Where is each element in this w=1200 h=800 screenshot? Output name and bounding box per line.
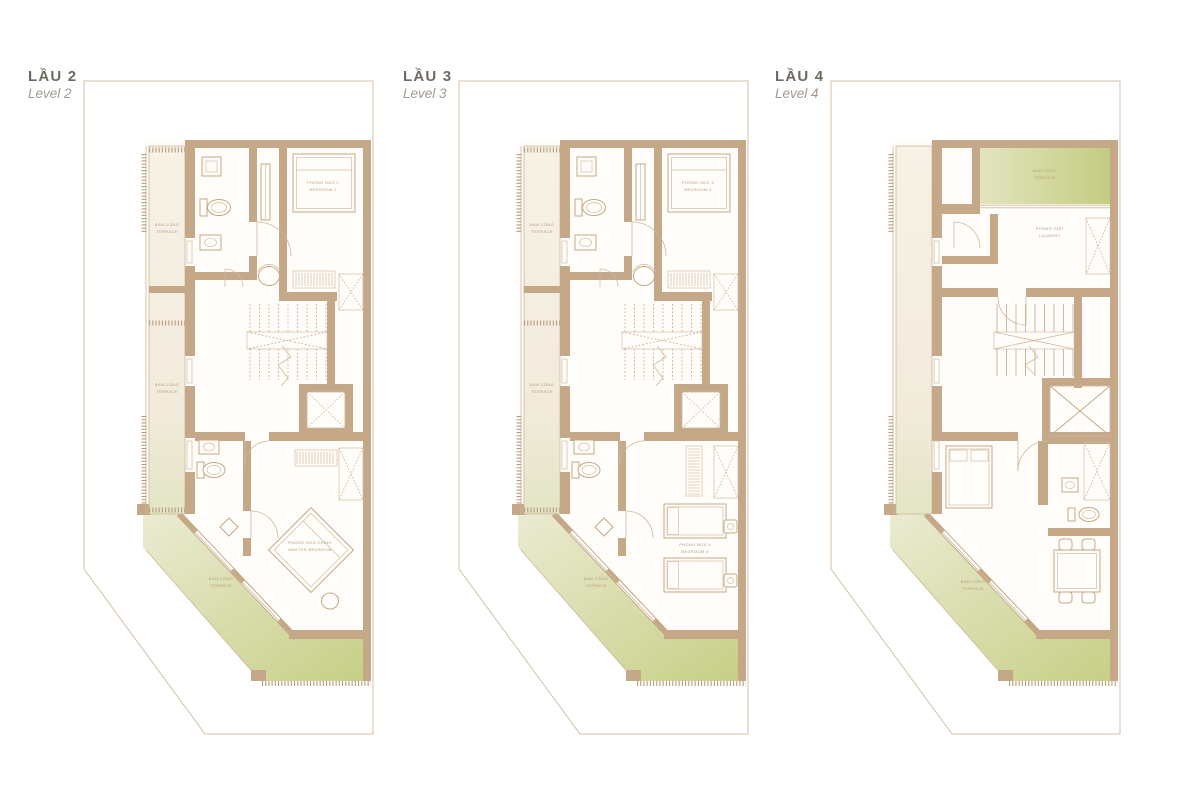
nightstand: [724, 520, 737, 533]
svg-text:TERRACE: TERRACE: [531, 229, 553, 234]
sink-fixture: [200, 235, 221, 250]
plan-title-block: LẦU 4 Level 4: [775, 68, 824, 101]
bed-furniture: [664, 558, 726, 592]
balcony-upper-label: BAN CÔNG: [155, 222, 179, 227]
svg-text:LAUNDRY: LAUNDRY: [1039, 233, 1061, 238]
toilet-fixture: [200, 199, 231, 216]
bedroom-top: PHÒNG NGỦ 3 BEDROOM 3: [668, 154, 730, 212]
bed-furniture: [946, 446, 992, 508]
balcony-lower-label: BAN CÔNG: [155, 382, 179, 387]
armchair: [321, 593, 339, 609]
floor-plan-level-4-drawing: BAN CÔNG TERRACE BAN CÔNG TERRACE: [830, 80, 1122, 740]
dining-table: [1054, 550, 1100, 592]
plan-subtitle: Level 3: [403, 86, 452, 101]
plan-level-4: LẦU 4 Level 4 BAN CÔNG TERRACE: [762, 66, 1142, 796]
balcony-strip: BAN CÔNG TERRACE BAN CÔNG TERRACE: [144, 146, 185, 514]
shower-fixture: [577, 157, 596, 176]
toilet-fixture: [572, 462, 600, 478]
light-well-strip: [891, 146, 932, 514]
closet-slot: [261, 164, 270, 220]
toilet-fixture: [1068, 508, 1099, 522]
sink-fixture: [574, 440, 594, 454]
svg-text:TERRACE: TERRACE: [962, 586, 984, 591]
plan-title-block: LẦU 3 Level 3: [403, 68, 452, 101]
plan-title: LẦU 3: [403, 68, 452, 85]
closet-slot: [636, 164, 645, 220]
svg-text:TERRACE: TERRACE: [1034, 175, 1056, 180]
svg-text:BEDROOM 3: BEDROOM 3: [684, 187, 712, 192]
plan-subtitle: Level 4: [775, 86, 824, 101]
terrace-label: BAN CÔNG: [584, 576, 608, 581]
chair: [1059, 539, 1072, 550]
svg-text:MASTER BEDROOM: MASTER BEDROOM: [288, 547, 331, 552]
toilet-fixture: [575, 199, 606, 216]
sink-fixture: [1062, 478, 1078, 492]
svg-text:TERRACE: TERRACE: [210, 583, 232, 588]
svg-text:BEDROOM 4: BEDROOM 4: [681, 549, 709, 554]
terrace-label: BAN CÔNG: [209, 576, 233, 581]
bedroom-top-label: PHÒNG NGỦ 3: [682, 180, 714, 185]
terrace-label: BAN CÔNG: [961, 579, 985, 584]
chair: [1082, 539, 1095, 550]
bedroom-bottom-label: PHÒNG NGỦ 4: [679, 542, 711, 547]
plan-title-block: LẦU 2 Level 2: [28, 68, 77, 101]
toilet-fixture: [197, 462, 225, 478]
plan-title: LẦU 4: [775, 68, 824, 85]
floor-plan-level-2-drawing: BAN CÔNG TERRACE BAN CÔNG TERRACE BAN CÔ…: [83, 80, 375, 740]
floor-plans-page: { "page": {"background": "#ffffff"}, "co…: [0, 0, 1200, 800]
floor-plan-level-3-drawing: BAN CÔNG TERRACE BAN CÔNG TERRACE BAN CÔ…: [458, 80, 750, 740]
bedroom-bottom-label: PHÒNG NGỦ CHÍNH: [288, 540, 332, 545]
svg-text:TERRACE: TERRACE: [156, 389, 178, 394]
sink-fixture: [575, 235, 596, 250]
svg-text:TERRACE: TERRACE: [585, 583, 607, 588]
plan-level-2: LẦU 2 Level 2 BAN CÔNG TERRACE: [15, 66, 395, 796]
chair: [1082, 592, 1095, 603]
bedroom-top-label: PHÒNG NGỦ 2: [307, 180, 339, 185]
utility-room-label: PHÒNG GIẶT: [1036, 226, 1065, 231]
bedroom-top: PHÒNG NGỦ 2 BEDROOM 2: [293, 154, 355, 212]
bed-furniture: [664, 504, 726, 538]
terrace-top: BAN CÔNG TERRACE: [980, 148, 1110, 208]
plan-subtitle: Level 2: [28, 86, 77, 101]
terrace-top-label: BAN CÔNG: [1033, 168, 1057, 173]
shower-fixture: [202, 157, 221, 176]
nightstand: [724, 574, 737, 587]
svg-text:BEDROOM 2: BEDROOM 2: [309, 187, 337, 192]
svg-text:TERRACE: TERRACE: [156, 229, 178, 234]
plan-title: LẦU 2: [28, 68, 77, 85]
balcony-upper-label: BAN CÔNG: [530, 222, 554, 227]
sink-fixture: [199, 440, 219, 454]
svg-text:TERRACE: TERRACE: [531, 389, 553, 394]
plan-level-3: LẦU 3 Level 3 BAN CÔNG TERRACE: [390, 66, 770, 796]
balcony-lower-label: BAN CÔNG: [530, 382, 554, 387]
chair: [1059, 592, 1072, 603]
balcony-strip: BAN CÔNG TERRACE BAN CÔNG TERRACE: [519, 146, 560, 514]
